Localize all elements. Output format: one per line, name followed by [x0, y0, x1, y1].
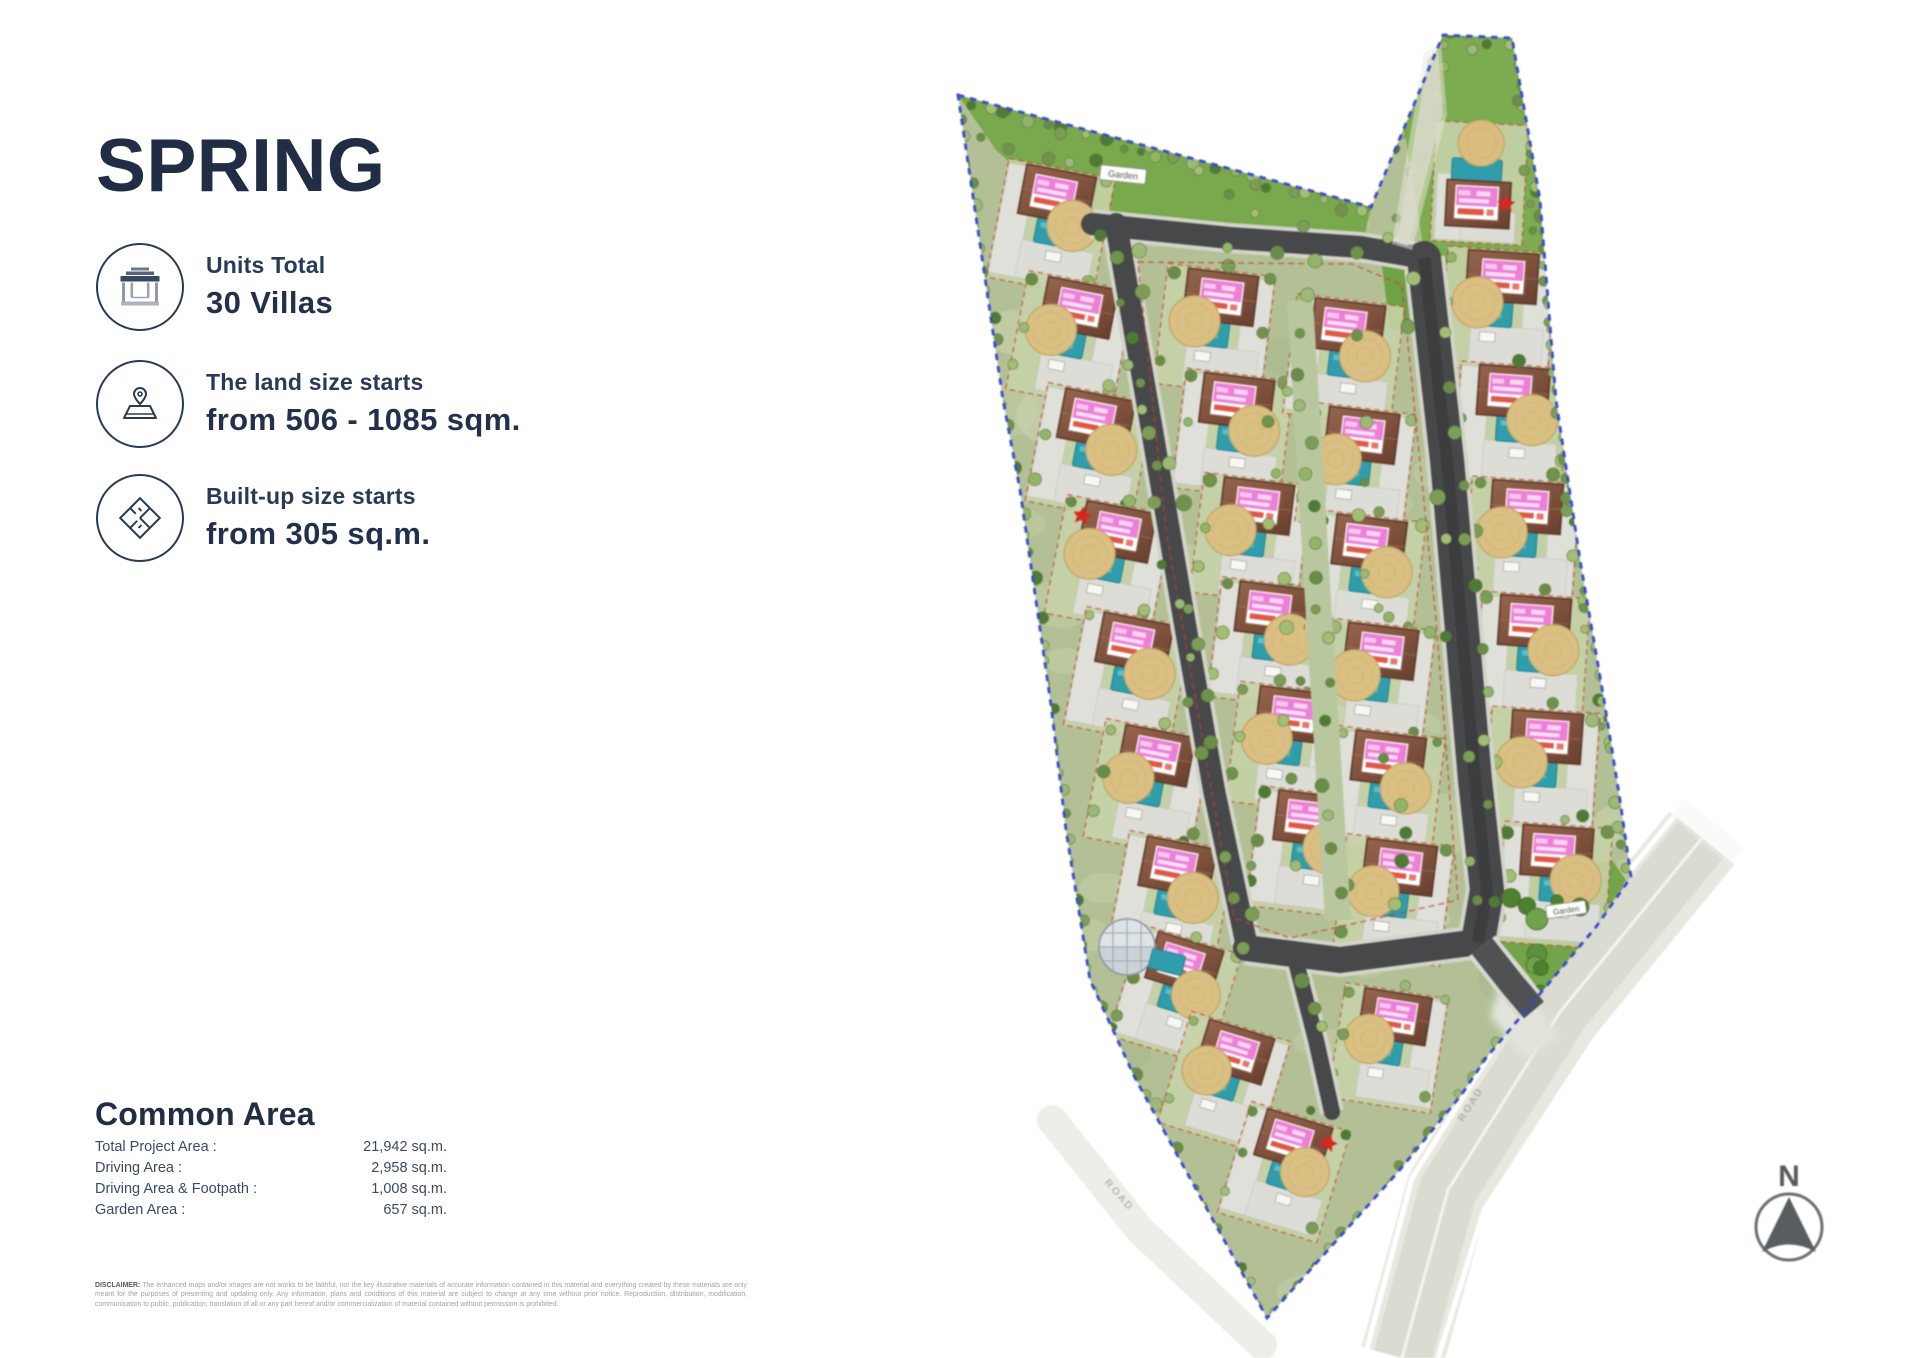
svg-text:N: N — [1778, 1160, 1800, 1193]
